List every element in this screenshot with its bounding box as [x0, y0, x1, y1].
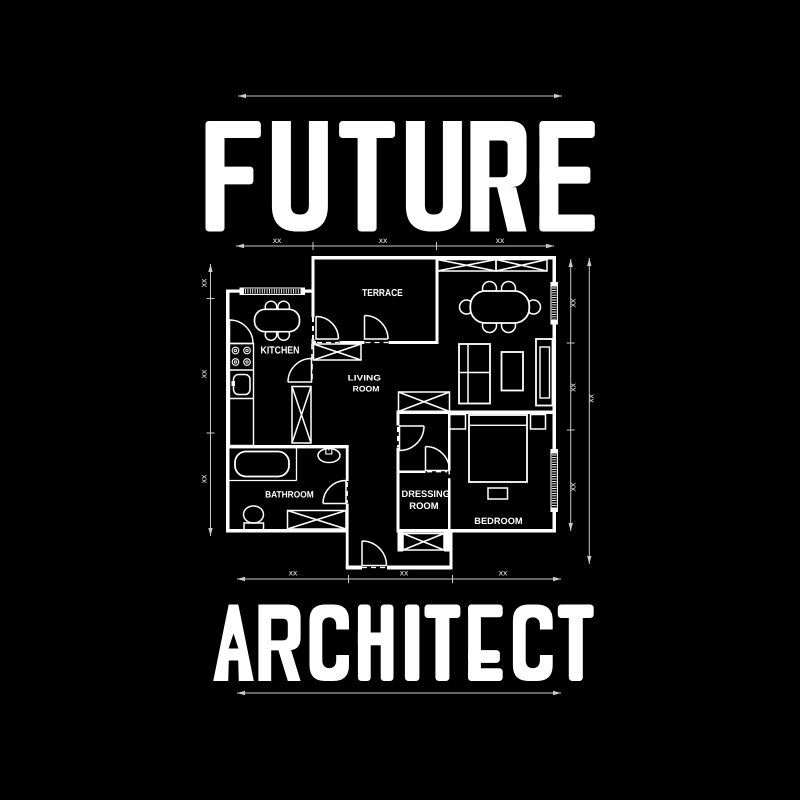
svg-text:XX: XX [589, 394, 596, 403]
svg-text:XX: XX [400, 571, 409, 578]
svg-text:ROOM: ROOM [353, 385, 380, 394]
svg-text:XX: XX [499, 571, 508, 578]
svg-text:XX: XX [202, 278, 209, 287]
svg-text:ROOM: ROOM [409, 501, 438, 512]
svg-text:BATHROOM: BATHROOM [265, 489, 314, 499]
svg-text:XX: XX [379, 238, 388, 245]
svg-text:XX: XX [202, 474, 209, 483]
svg-text:XX: XX [496, 238, 505, 245]
svg-text:DRESSING: DRESSING [402, 489, 450, 500]
svg-text:XX: XX [570, 383, 577, 392]
svg-text:TERRACE: TERRACE [362, 288, 403, 299]
svg-text:XX: XX [570, 298, 577, 307]
svg-text:XX: XX [289, 571, 298, 578]
svg-text:XX: XX [273, 238, 282, 245]
svg-text:XX: XX [202, 369, 209, 378]
svg-text:BEDROOM: BEDROOM [474, 516, 523, 526]
svg-text:KITCHEN: KITCHEN [261, 345, 300, 356]
svg-text:LIVING: LIVING [348, 374, 381, 383]
svg-text:XX: XX [570, 482, 577, 491]
